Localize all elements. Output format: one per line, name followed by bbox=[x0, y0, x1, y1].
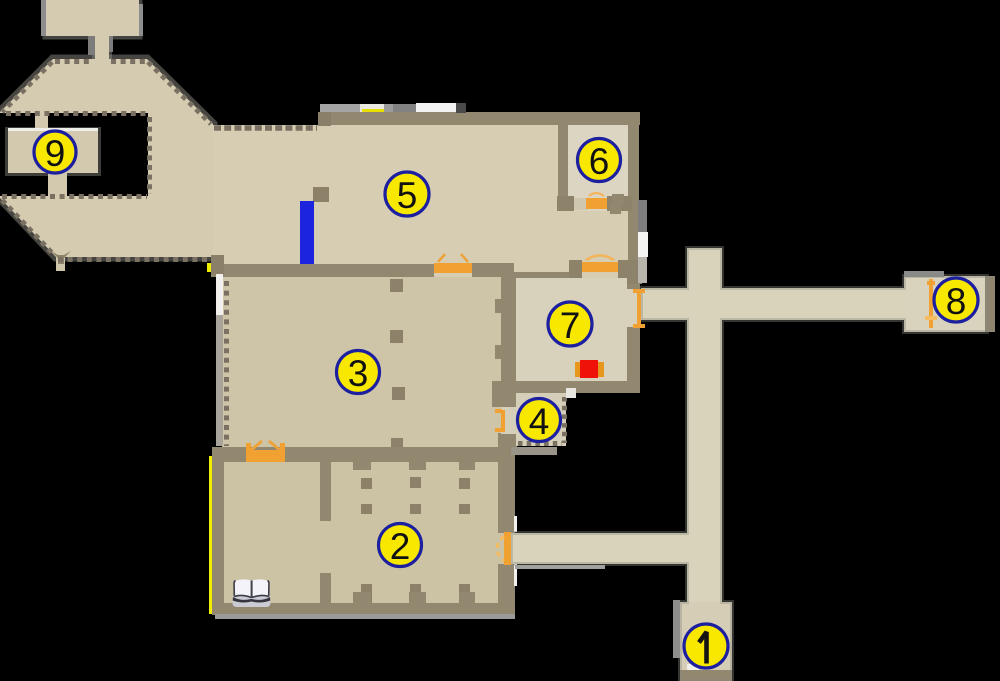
svg-text:9: 9 bbox=[45, 133, 66, 174]
svg-text:5: 5 bbox=[397, 175, 418, 216]
svg-text:7: 7 bbox=[560, 305, 581, 346]
svg-text:2: 2 bbox=[390, 526, 411, 567]
svg-text:8: 8 bbox=[946, 281, 967, 322]
svg-text:4: 4 bbox=[529, 401, 550, 442]
svg-text:3: 3 bbox=[348, 353, 369, 394]
svg-text:6: 6 bbox=[589, 141, 610, 182]
